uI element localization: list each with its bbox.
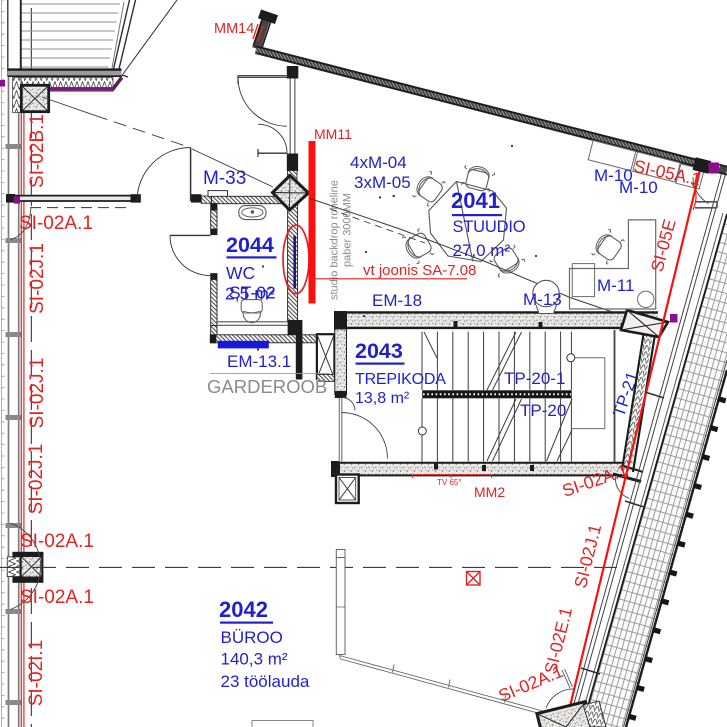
- svg-text:TP-20-1: TP-20-1: [504, 369, 565, 388]
- svg-text:SI-02A.1: SI-02A.1: [19, 213, 93, 234]
- svg-text:13,8 m²: 13,8 m²: [355, 390, 410, 407]
- svg-text:ST-02: ST-02: [229, 283, 276, 303]
- svg-text:4xM-04: 4xM-04: [350, 153, 407, 172]
- svg-text:2043: 2043: [355, 339, 403, 363]
- svg-text:SI-02J.1: SI-02J.1: [27, 243, 48, 314]
- svg-text:SI-02J.1: SI-02J.1: [27, 358, 48, 429]
- svg-text:2041: 2041: [451, 188, 500, 213]
- svg-text:BÜROO: BÜROO: [221, 628, 283, 647]
- svg-text:SI-02B.1: SI-02B.1: [27, 114, 48, 188]
- svg-text:SI-02I.1: SI-02I.1: [26, 640, 47, 707]
- svg-text:23 töölauda: 23 töölauda: [221, 672, 310, 691]
- svg-text:SI-02J.1: SI-02J.1: [26, 444, 47, 515]
- svg-text:M-13: M-13: [523, 290, 562, 309]
- svg-text:SI-05E: SI-05E: [647, 217, 680, 274]
- svg-text:27,0 m²: 27,0 m²: [453, 241, 511, 260]
- svg-text:TREPIKODA: TREPIKODA: [355, 371, 446, 388]
- svg-text:SI-02A.1: SI-02A.1: [20, 531, 94, 552]
- svg-text:MM14: MM14: [214, 21, 254, 37]
- svg-text:M-33: M-33: [203, 168, 246, 189]
- svg-text:MM2: MM2: [474, 484, 505, 500]
- svg-text:EM-18: EM-18: [372, 291, 422, 310]
- svg-text:3xM-05: 3xM-05: [354, 173, 411, 192]
- svg-text:2044: 2044: [226, 233, 274, 257]
- svg-text:TV 65°: TV 65°: [437, 478, 462, 487]
- svg-text:EM-13.1: EM-13.1: [227, 352, 291, 371]
- svg-text:M-10: M-10: [619, 178, 658, 197]
- svg-text:2042: 2042: [219, 597, 268, 622]
- svg-text:MM11: MM11: [314, 126, 352, 142]
- svg-text:GARDEROOB: GARDEROOB: [207, 376, 327, 397]
- svg-text:STUUDIO: STUUDIO: [453, 218, 526, 236]
- svg-text:paber 3000MM: paber 3000MM: [342, 193, 354, 267]
- svg-text:SI-02A.1: SI-02A.1: [495, 661, 566, 706]
- svg-text:vt joonis SA-7.08: vt joonis SA-7.08: [363, 262, 476, 279]
- svg-text:140,3 m²: 140,3 m²: [221, 650, 288, 669]
- svg-text:WC: WC: [226, 263, 255, 283]
- svg-text:TP-20: TP-20: [520, 401, 566, 420]
- svg-text:SI-02A.1: SI-02A.1: [20, 587, 94, 608]
- svg-text:studio backdrop roheline: studio backdrop roheline: [329, 180, 341, 300]
- svg-text:M-11: M-11: [597, 276, 634, 295]
